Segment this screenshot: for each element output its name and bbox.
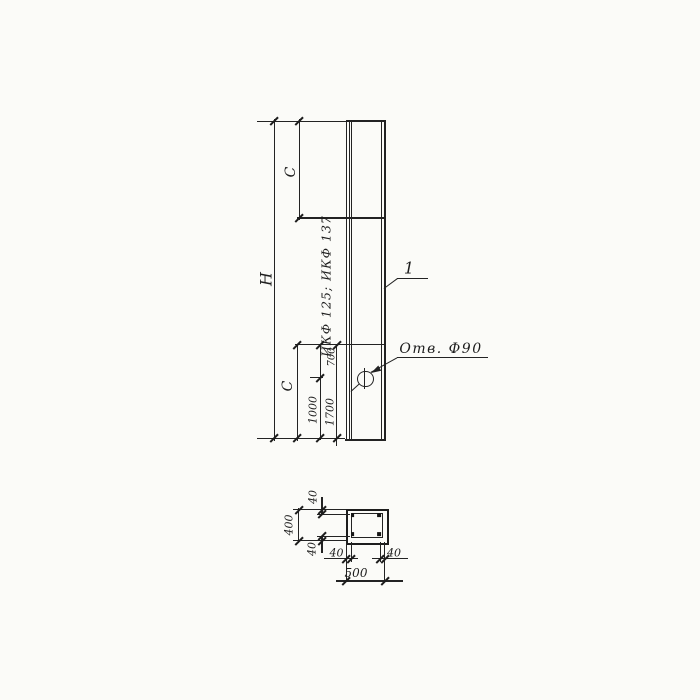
dim-label-40-right: 40 [387,546,401,559]
technical-drawing-canvas: H С С 1000 1700 700 ИКФ 125; ИКФ 137 [0,0,700,700]
dim-label-500: 500 [345,566,368,580]
lower-joint-line [295,344,385,345]
rebar-dot [377,532,381,536]
dim-label-1000: 1000 [306,396,319,424]
dim-label-40-bottom: 40 [305,542,318,556]
dim-label-h: H [257,272,276,286]
column-right-edge [384,121,386,440]
hole-leader-underline [397,357,488,358]
bottom-extension-line [257,438,345,439]
dim-line-c-bottom [297,344,298,441]
section-ext-v-outer-right [384,542,385,583]
dim-label-c-top: С [283,167,299,178]
dim-label-40-left: 40 [330,546,344,559]
column-inner-line-right [381,121,382,440]
hole-centerline [364,368,365,389]
rebar-dot [377,513,381,517]
upper-joint-line [297,217,385,218]
callout-leader-shelf [397,278,428,279]
dim-label-400: 400 [282,514,295,535]
dim-label-1700: 1700 [323,398,336,426]
rebar-dot [351,532,355,536]
rebar-dot [351,513,355,517]
callout-number-label: 1 [404,259,414,278]
dim-label-c-bottom: С [280,380,296,391]
column-inner-line-left-a [349,121,350,440]
series-note: ИКФ 125; ИКФ 137 [319,215,334,357]
hole-note-label: Отв. Ф90 [399,341,482,357]
column-left-edge [346,121,348,440]
dim-line-400 [298,508,299,543]
hole-leader-arrowhead-icon [369,365,381,375]
dim-line-1000 [320,344,321,440]
column-bottom-edge [345,439,387,441]
dim-label-40-top: 40 [306,490,319,504]
